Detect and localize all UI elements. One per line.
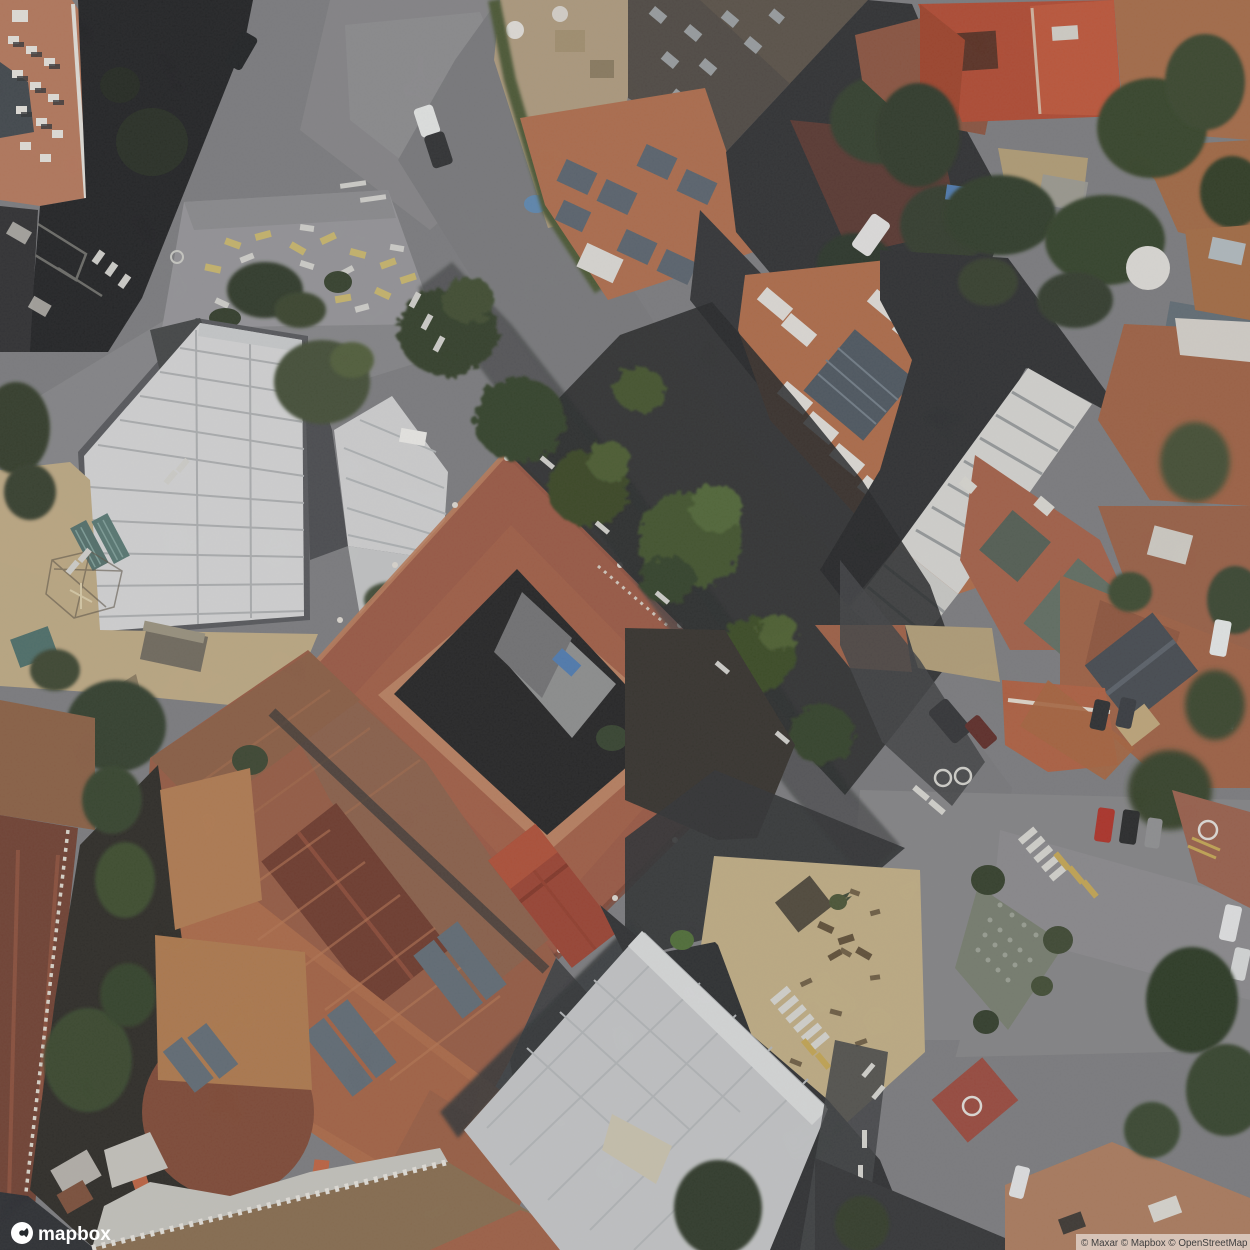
svg-text:© Maxar © Mapbox © OpenStreetM: © Maxar © Mapbox © OpenStreetMap	[1081, 1238, 1248, 1249]
svg-text:mapbox: mapbox	[38, 1224, 111, 1245]
